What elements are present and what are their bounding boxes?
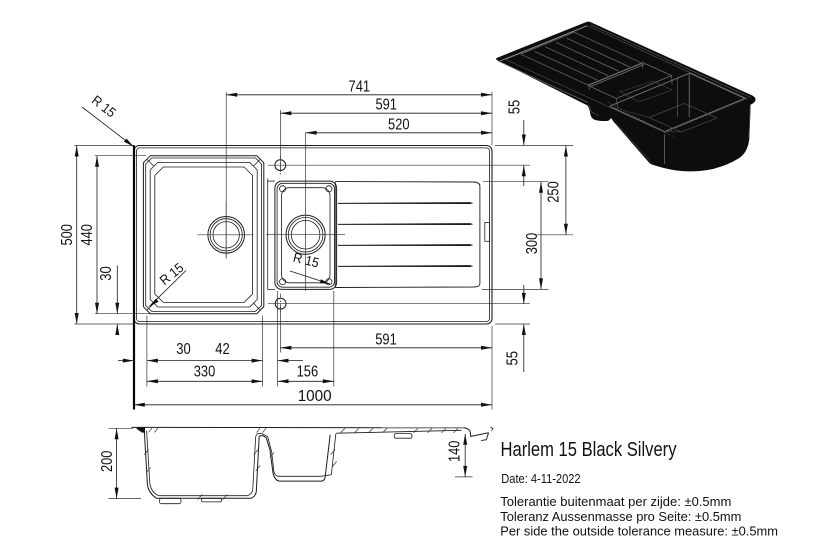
- svg-text:Tolerantie buitenmaat per zijd: Tolerantie buitenmaat per zijde: ±0.5mm: [500, 494, 731, 509]
- svg-text:55: 55: [505, 351, 522, 366]
- svg-text:140: 140: [446, 441, 463, 463]
- svg-text:Date: 4-11-2022: Date: 4-11-2022: [501, 471, 580, 486]
- svg-text:591: 591: [375, 97, 397, 114]
- svg-text:200: 200: [99, 451, 116, 473]
- svg-text:55: 55: [507, 100, 524, 115]
- svg-text:1000: 1000: [298, 388, 332, 405]
- svg-text:741: 741: [349, 78, 371, 95]
- svg-text:520: 520: [388, 116, 410, 133]
- svg-text:Harlem 15 Black Silvery: Harlem 15 Black Silvery: [501, 438, 678, 461]
- svg-text:300: 300: [524, 233, 541, 255]
- svg-text:440: 440: [79, 224, 96, 246]
- svg-text:591: 591: [375, 331, 397, 348]
- svg-text:30: 30: [98, 266, 115, 281]
- svg-text:156: 156: [297, 363, 319, 380]
- svg-text:42: 42: [215, 341, 230, 358]
- svg-text:30: 30: [176, 341, 191, 358]
- svg-text:500: 500: [59, 224, 76, 246]
- svg-text:250: 250: [546, 181, 563, 203]
- svg-text:Toleranz Aussenmasse pro Seite: Toleranz Aussenmasse pro Seite: ±0.5mm: [500, 509, 741, 524]
- svg-text:Per side the outside tolerance: Per side the outside tolerance measure: …: [500, 523, 778, 538]
- svg-text:330: 330: [194, 363, 216, 380]
